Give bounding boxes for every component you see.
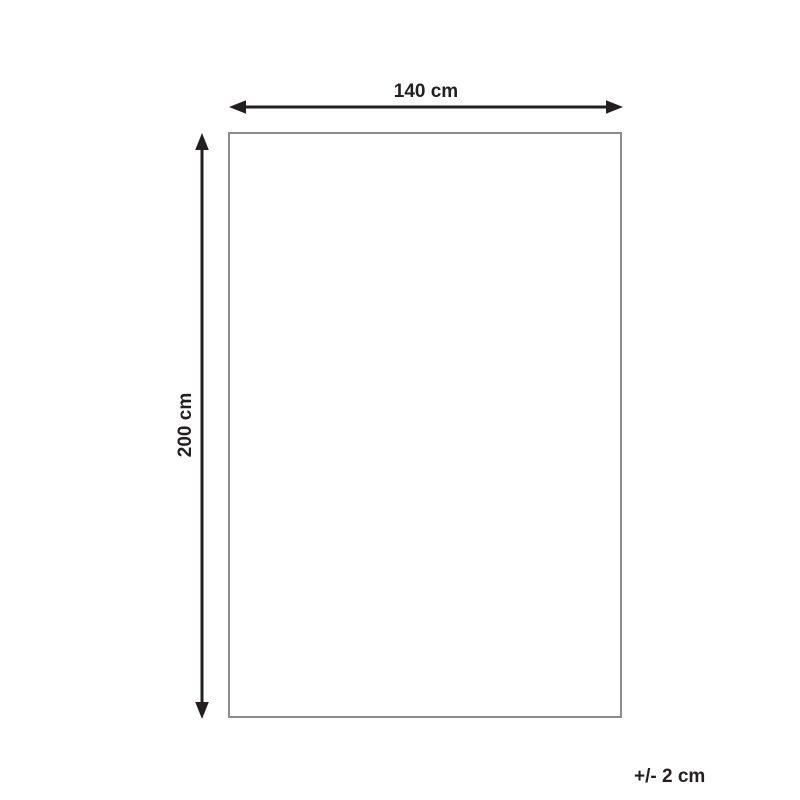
height-dimension-label: 200 cm	[175, 393, 197, 457]
dimension-diagram: 140 cm 200 cm +/- 2 cm	[0, 0, 800, 800]
product-outline-rectangle	[228, 132, 622, 718]
width-dimension-label: 140 cm	[228, 81, 624, 103]
tolerance-label: +/- 2 cm	[634, 766, 705, 788]
